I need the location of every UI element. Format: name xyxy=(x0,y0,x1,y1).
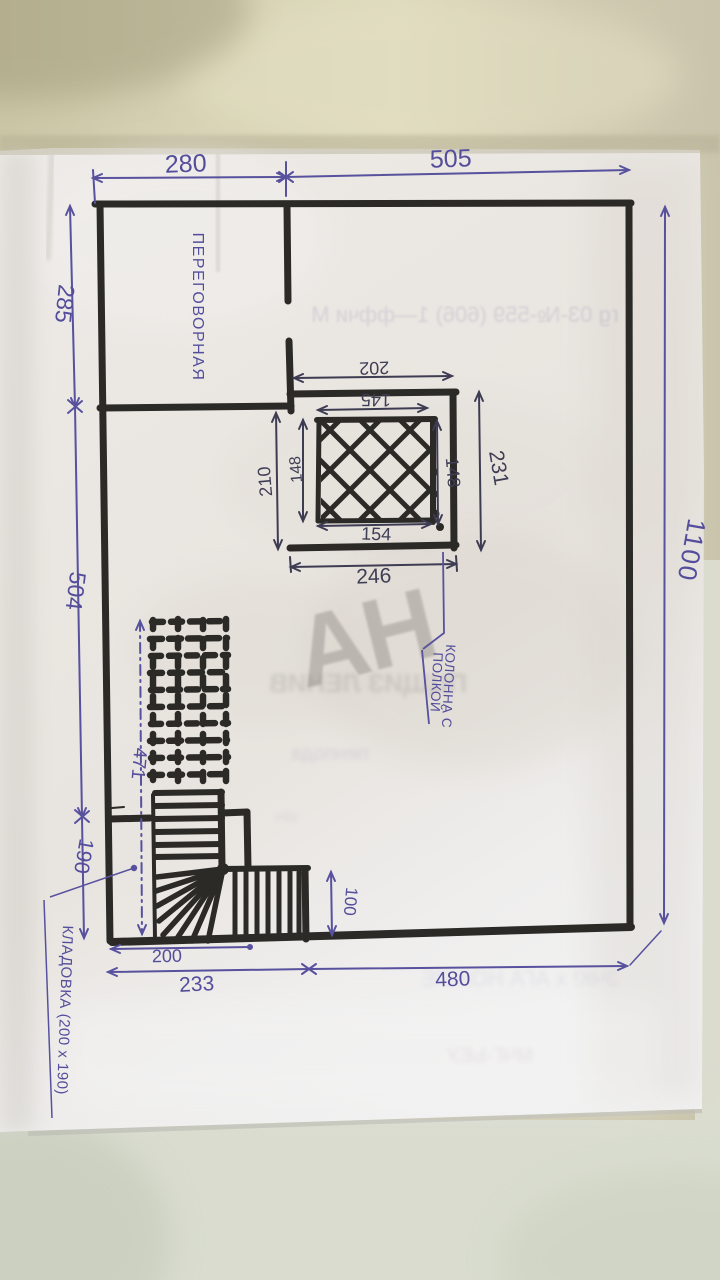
svg-text:480: 480 xyxy=(435,967,471,991)
svg-text:ПОЛКОЙ: ПОЛКОЙ xyxy=(427,652,445,713)
svg-text:246: 246 xyxy=(356,564,392,588)
svg-text:гg 03-№-559 (606) 1—ффчи М: гg 03-№-559 (606) 1—ффчи М xyxy=(311,302,619,327)
svg-text:154: 154 xyxy=(361,523,392,544)
svg-text:148: 148 xyxy=(287,455,306,483)
svg-text:148: 148 xyxy=(442,457,465,489)
svg-text:202: 202 xyxy=(359,357,390,378)
svg-text:145: 145 xyxy=(361,390,391,411)
svg-text:210: 210 xyxy=(254,466,277,498)
svg-text:505: 505 xyxy=(429,144,472,173)
svg-text:471: 471 xyxy=(127,747,151,780)
svg-text:100: 100 xyxy=(340,887,361,917)
svg-text:МЧГ-ЬЕУ: МЧГ-ЬЕУ xyxy=(446,1045,533,1067)
svg-text:з9ч: з9ч xyxy=(275,809,300,826)
svg-text:280: 280 xyxy=(164,149,207,178)
svg-text:ПЕРЕГОВОРНАЯ: ПЕРЕГОВОРНАЯ xyxy=(189,233,206,382)
svg-text:233: 233 xyxy=(179,972,215,997)
svg-text:200: 200 xyxy=(152,946,182,967)
svg-text:пенпода: пенпода xyxy=(290,743,368,765)
svg-text:285: 285 xyxy=(50,283,80,324)
svg-text:504: 504 xyxy=(61,570,92,611)
